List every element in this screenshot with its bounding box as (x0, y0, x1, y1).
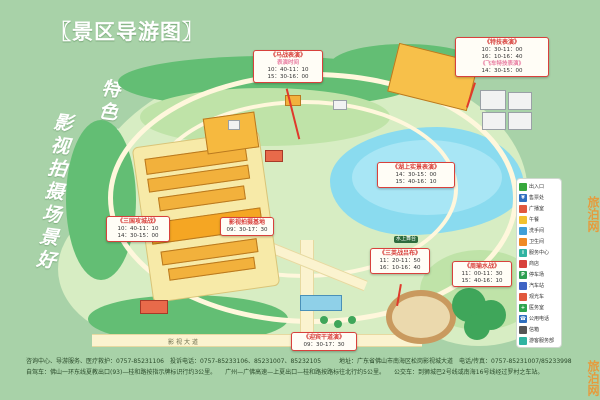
legend-item: 游客服务部 (519, 335, 559, 346)
legend-icon (519, 260, 527, 268)
legend-label: 服务中心 (529, 249, 549, 256)
show-title: 《马战表演》 (256, 52, 320, 60)
show-title: 《周瑜水战》 (455, 263, 509, 271)
legend-icon: + (519, 304, 527, 312)
show-box-lake-show[interactable]: 《湖上实景表演》 14：30-15：00 15：40-16：10 (377, 162, 455, 188)
legend-item: 广播室 (519, 203, 559, 214)
show-time: 10：40-11：10 (256, 67, 320, 74)
legend-item: P停车场 (519, 269, 559, 280)
show-title: 影视拍摄基地 (223, 219, 271, 227)
show-title: 《湖上实景表演》 (380, 164, 452, 172)
white-building-1 (480, 90, 506, 110)
watermark-text-corner: 旅泊网 (585, 360, 600, 396)
legend-icon: ☎ (519, 315, 527, 323)
small-building-1 (265, 150, 283, 162)
legend-item: 汽车站 (519, 280, 559, 291)
legend-item: +医务室 (519, 302, 559, 313)
pagoda-building (203, 112, 260, 155)
footer-contact-line: 咨询中心、导游服务、医疗救护：0757-85231106 投诉电话：0757-8… (26, 356, 578, 365)
show-time: 16：10-16：40 (458, 54, 546, 61)
show-title: 《三国攻城战》 (109, 218, 167, 226)
show-time: 11：00-11：30 (455, 271, 509, 278)
watermark-text: 旅泊网 (585, 196, 600, 232)
legend-label: 信箱 (529, 326, 539, 333)
small-building-5 (140, 300, 168, 314)
legend-label: 汽车站 (529, 282, 544, 289)
legend-icon (519, 238, 527, 246)
tree-small-2 (334, 320, 342, 328)
show-time: 16：10-16：40 (373, 265, 427, 272)
legend-label: 观光车 (529, 293, 544, 300)
legend-item: 卫生间 (519, 236, 559, 247)
show-subtitle: 表演时间 (256, 60, 320, 67)
show-box-parade[interactable]: 《迎宾干道演》 09：30-17：30 (291, 332, 357, 351)
show-time: 09：30-17：30 (223, 227, 271, 234)
show-box-city-siege[interactable]: 《三国攻城战》 10：40-11：10 14：30-15：00 (106, 216, 170, 242)
legend-icon (519, 337, 527, 345)
legend-item: 信箱 (519, 324, 559, 335)
page-title: 〖景区导游图〗 (50, 16, 204, 46)
tree-small-1 (320, 316, 328, 324)
small-building-3 (333, 100, 347, 110)
show-title: 《三英战吕布》 (373, 250, 427, 258)
legend-panel: 出入口¥售票处广播室午餐洗手间卫生间i服务中心商店P停车场汽车站观光车+医务室☎… (516, 178, 562, 348)
legend-label: 医务室 (529, 304, 544, 311)
tree-small-3 (348, 316, 356, 324)
legend-icon (519, 282, 527, 290)
white-building-4 (508, 112, 532, 130)
white-building-2 (508, 92, 532, 110)
legend-icon (519, 326, 527, 334)
show-title: 《迎宾干道演》 (294, 334, 354, 342)
show-time: 15：30-16：00 (256, 74, 320, 81)
legend-label: 广播室 (529, 205, 544, 212)
show-box-water-battle[interactable]: 《周瑜水战》 11：00-11：30 15：40-16：10 (452, 261, 512, 287)
small-building-4 (228, 120, 240, 130)
show-box-horse-battle[interactable]: 《马战表演》 表演时间 10：40-11：10 15：30-16：00 (253, 50, 323, 83)
pool-building (300, 295, 342, 311)
legend-icon (519, 205, 527, 213)
tour-map-page: 〖景区导游图〗 特色旅游乐趣多 影视拍摄场景好 旅泊网 旅泊网 (0, 0, 600, 400)
legend-icon (519, 183, 527, 191)
legend-label: 公用电话 (529, 315, 549, 322)
legend-label: 出入口 (529, 183, 544, 190)
legend-icon (519, 227, 527, 235)
show-box-stunt[interactable]: 《特技表演》 10：30-11：00 16：10-16：40 《飞车特技表演》 … (455, 37, 549, 77)
legend-item: 出入口 (519, 181, 559, 192)
show-time: 09：30-17：30 (294, 342, 354, 349)
footer-directions-line: 自驾车：佛山一环东线夏教出口(93)—桂和路按指示牌标识行约3公里。 广州—广佛… (26, 367, 578, 376)
legend-icon: P (519, 271, 527, 279)
show-time: 10：40-11：10 (109, 226, 167, 233)
legend-label: 午餐 (529, 216, 539, 223)
tree-large-3 (464, 314, 490, 340)
legend-label: 洗手间 (529, 227, 544, 234)
road-name-label: 影视大道 (168, 337, 200, 346)
show-box-film-base[interactable]: 影视拍摄基地 09：30-17：30 (220, 217, 274, 236)
show-title: 《特技表演》 (458, 39, 546, 47)
legend-label: 售票处 (529, 194, 544, 201)
legend-item: 观光车 (519, 291, 559, 302)
legend-icon (519, 293, 527, 301)
water-stage-sign: 水上舞台 (394, 236, 418, 243)
legend-item: ¥售票处 (519, 192, 559, 203)
show-time: 14：30-15：00 (458, 68, 546, 75)
legend-label: 游客服务部 (529, 337, 554, 344)
legend-item: 商店 (519, 258, 559, 269)
show-time: 10：30-11：00 (458, 47, 546, 54)
legend-label: 停车场 (529, 271, 544, 278)
legend-item: i服务中心 (519, 247, 559, 258)
legend-label: 卫生间 (529, 238, 544, 245)
legend-item: ☎公用电话 (519, 313, 559, 324)
legend-icon: ¥ (519, 194, 527, 202)
white-building-3 (482, 112, 506, 130)
show-time: 15：40-16：10 (380, 179, 452, 186)
show-time: 14：30-15：00 (109, 233, 167, 240)
show-time: 15：40-16：10 (455, 278, 509, 285)
legend-icon: i (519, 249, 527, 257)
legend-item: 洗手间 (519, 225, 559, 236)
main-road (92, 334, 422, 347)
legend-item: 午餐 (519, 214, 559, 225)
legend-label: 商店 (529, 260, 539, 267)
show-time: 14：30-15：00 (380, 172, 452, 179)
legend-icon (519, 216, 527, 224)
show-subtitle: 《飞车特技表演》 (458, 61, 546, 68)
show-box-three-heroes[interactable]: 《三英战吕布》 11：20-11：50 16：10-16：40 (370, 248, 430, 274)
show-time: 11：20-11：50 (373, 258, 427, 265)
